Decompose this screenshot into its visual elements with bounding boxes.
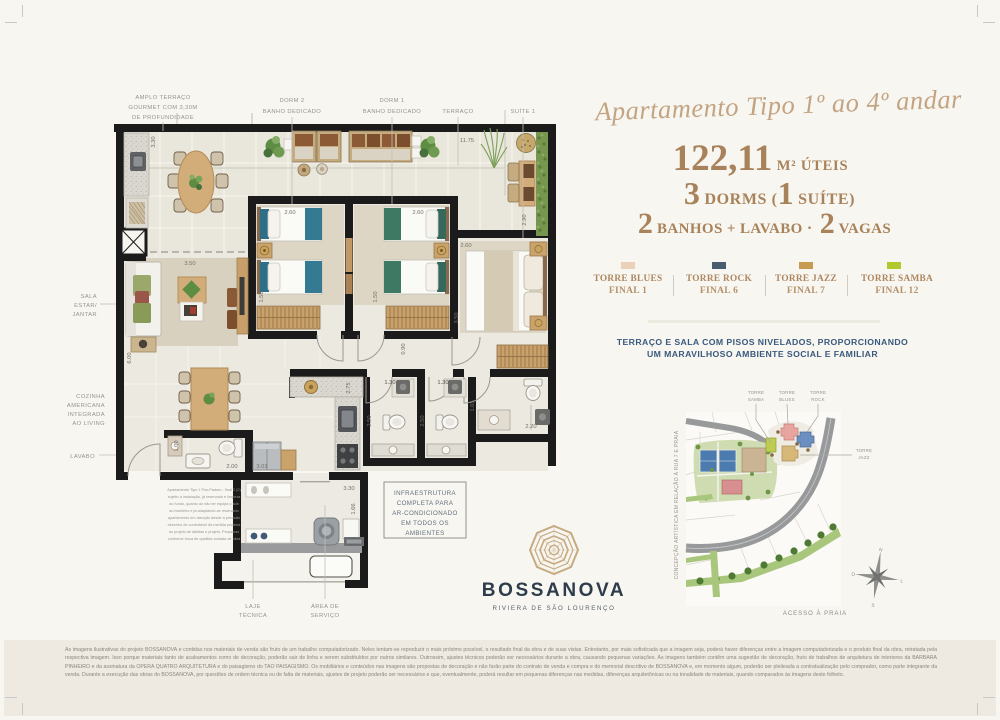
svg-text:AR-CONDICIONADO: AR-CONDICIONADO (392, 510, 457, 517)
svg-text:2.00: 2.00 (226, 464, 237, 470)
svg-text:1.50: 1.50 (259, 291, 265, 302)
svg-text:0.90: 0.90 (401, 343, 407, 354)
svg-text:1.00: 1.00 (174, 440, 180, 451)
svg-text:AMBIENTES: AMBIENTES (405, 530, 444, 537)
svg-text:BANHO DEDICADO: BANHO DEDICADO (263, 109, 322, 115)
svg-text:2.60: 2.60 (284, 210, 295, 216)
svg-text:ESTAR/: ESTAR/ (74, 303, 97, 309)
svg-text:ÁREA DE: ÁREA DE (311, 603, 339, 610)
svg-text:2.75: 2.75 (346, 382, 352, 393)
svg-text:GOURMET COM 3,30M: GOURMET COM 3,30M (128, 105, 197, 111)
svg-text:SUÍTE 1: SUÍTE 1 (511, 108, 536, 115)
svg-text:conforme troca de qualitas tom: conforme troca de qualitas tomada de obr… (168, 537, 241, 541)
svg-text:3.30: 3.30 (151, 136, 157, 147)
svg-text:apartamento em atenção desde a: apartamento em atenção desde a previsão (168, 516, 240, 520)
svg-text:2.60: 2.60 (412, 210, 423, 216)
svg-text:3.50: 3.50 (184, 261, 195, 267)
svg-text:3.50: 3.50 (454, 312, 460, 323)
svg-text:1.50: 1.50 (373, 291, 379, 302)
svg-text:DE PROFUNDIDADE: DE PROFUNDIDADE (132, 115, 194, 121)
svg-text:1.65: 1.65 (470, 400, 476, 411)
svg-text:desenho de confortável da medi: desenho de confortável da medida proxima (168, 523, 242, 527)
svg-text:sujeito a instalação, já reser: sujeito a instalação, já reservado e lim… (168, 495, 241, 499)
svg-text:6.00: 6.00 (127, 352, 133, 363)
svg-text:Apartamento Tipo 1 Pos-Padrao: Apartamento Tipo 1 Pos-Padrao - final 2 … (167, 488, 241, 492)
svg-text:COMPLETA PARA: COMPLETA PARA (397, 500, 454, 507)
svg-text:INFRAESTRUTURA: INFRAESTRUTURA (394, 490, 456, 497)
svg-text:ao fundo, quanto ao não ter eq: ao fundo, quanto ao não ter equipa o sob (169, 502, 238, 506)
svg-text:2.60: 2.60 (460, 243, 471, 249)
svg-text:JANTAR: JANTAR (72, 312, 97, 318)
svg-text:SERVIÇO: SERVIÇO (311, 613, 340, 619)
svg-text:DORM 1: DORM 1 (380, 98, 405, 104)
svg-text:LAJE: LAJE (245, 604, 260, 610)
svg-text:2.50: 2.50 (420, 415, 426, 426)
svg-text:2.20: 2.20 (525, 424, 536, 430)
svg-text:TERRAÇO: TERRAÇO (442, 109, 473, 115)
svg-text:3.01: 3.01 (256, 464, 267, 470)
svg-text:3.30: 3.30 (343, 486, 354, 492)
svg-text:2.90: 2.90 (522, 214, 528, 225)
svg-text:SALA: SALA (81, 294, 97, 300)
svg-text:1.30: 1.30 (437, 380, 448, 386)
svg-text:AO LIVING: AO LIVING (72, 421, 105, 427)
svg-text:TÉCNICA: TÉCNICA (239, 612, 267, 619)
svg-text:ao projeto de tablitas e proje: ao projeto de tablitas e projeto. Pequen… (169, 530, 239, 534)
svg-text:INTEGRADA: INTEGRADA (68, 412, 105, 418)
svg-text:AMERICANA: AMERICANA (67, 403, 105, 409)
svg-text:DORM 2: DORM 2 (280, 98, 305, 104)
svg-text:EM TODOS OS: EM TODOS OS (401, 520, 449, 527)
svg-text:ao banheiro e já adaptando-se: ao banheiro e já adaptando-se reservado (169, 509, 238, 513)
svg-text:COZINHA: COZINHA (76, 394, 105, 400)
svg-text:11.75: 11.75 (460, 138, 474, 144)
svg-text:1.66: 1.66 (351, 503, 357, 514)
svg-text:LAVABO: LAVABO (70, 454, 95, 460)
svg-text:AMPLO TERRAÇO: AMPLO TERRAÇO (135, 95, 190, 101)
svg-text:2.50: 2.50 (367, 415, 373, 426)
svg-text:BANHO DEDICADO: BANHO DEDICADO (363, 109, 422, 115)
svg-text:1.30: 1.30 (384, 380, 395, 386)
